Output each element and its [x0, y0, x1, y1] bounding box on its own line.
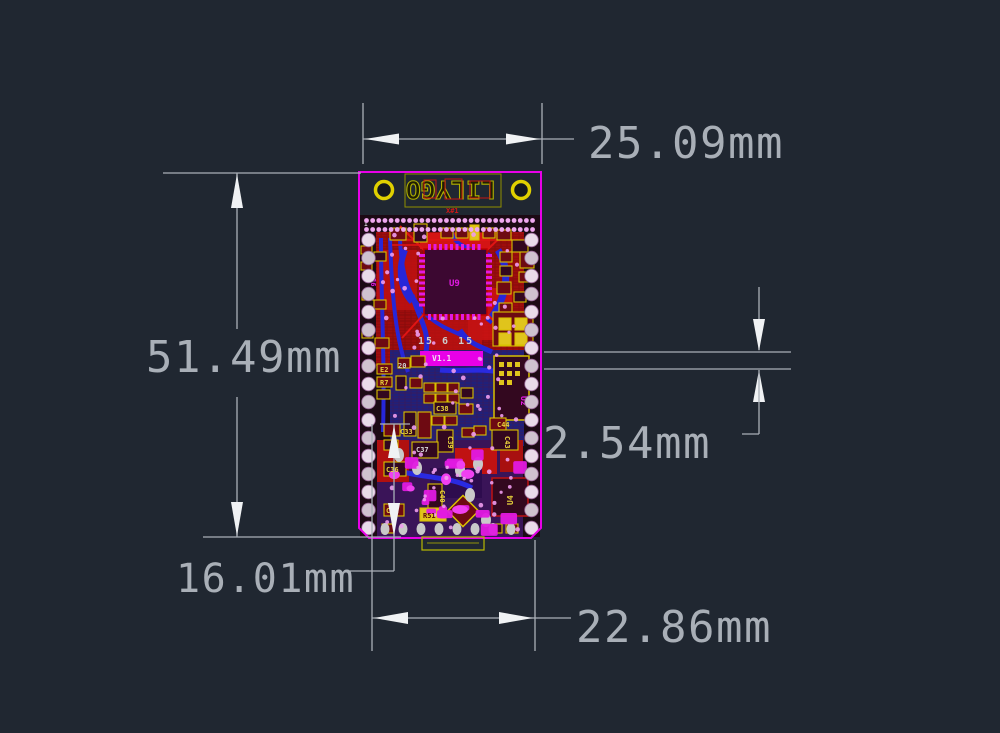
chip-pin: [467, 244, 470, 250]
header-pad: [438, 227, 443, 232]
header-pad: [389, 218, 394, 223]
edge-pad-left: [362, 287, 376, 301]
component-pad: [375, 338, 389, 348]
header-pad: [426, 218, 431, 223]
via-dot: [466, 403, 470, 407]
chip-u9: U9: [419, 244, 492, 320]
via-dot: [475, 469, 479, 473]
via-dot: [396, 278, 399, 281]
via-dot: [503, 305, 507, 309]
header-pad: [469, 227, 474, 232]
edge-pad-left: [362, 503, 376, 517]
component-pad: [500, 266, 512, 276]
via-dot: [441, 316, 445, 320]
mounting-hole-right: [513, 182, 530, 199]
component-pad: [384, 424, 400, 436]
bottom-oval-pad: [417, 523, 426, 535]
label-r51: R51: [423, 512, 436, 520]
chip-pin: [461, 314, 464, 320]
component-pad: [374, 252, 386, 261]
via-dot: [385, 270, 389, 274]
label-c20: 20: [398, 362, 406, 370]
component-pad: [418, 412, 431, 438]
header-pad: [487, 227, 492, 232]
header-pad: [530, 227, 535, 232]
component-pad: [414, 224, 427, 242]
via-dot: [486, 316, 490, 320]
via-dot: [416, 252, 420, 256]
header-pad: [456, 227, 461, 232]
via-dot: [499, 491, 502, 494]
header-pad: [469, 218, 474, 223]
arrowhead-left: [365, 134, 399, 145]
header-pad: [512, 227, 517, 232]
via-dot: [493, 301, 497, 305]
header-pad: [419, 227, 424, 232]
chip-pin: [419, 287, 425, 290]
chip-pin: [428, 244, 431, 250]
chip-pin: [445, 314, 448, 320]
header-pad: [481, 227, 486, 232]
header-pad: [364, 227, 369, 232]
header-pad: [506, 227, 511, 232]
via-dot: [432, 486, 435, 489]
header-pad: [407, 218, 412, 223]
chip-pin: [428, 314, 431, 320]
header-bar: [420, 351, 483, 366]
header-pad: [438, 218, 443, 223]
header-pad: [518, 227, 523, 232]
dimension-bottom-text: 22.86mm: [576, 602, 772, 653]
via-dot: [390, 289, 395, 294]
via-dot: [402, 286, 407, 291]
edge-pad-right: [525, 377, 539, 391]
via-dot: [393, 414, 397, 418]
edge-pad-left: [362, 413, 376, 427]
via-dot: [384, 316, 389, 321]
header-pad: [444, 227, 449, 232]
via-dot: [432, 470, 436, 474]
edge-pad-left: [362, 323, 376, 337]
chip-pin: [456, 314, 459, 320]
label-c39: C39: [446, 436, 454, 449]
component-pad: [377, 390, 390, 399]
edge-pad-left: [362, 269, 376, 283]
chip-pin: [486, 298, 492, 301]
arrowhead-down: [231, 502, 243, 536]
via-dot: [415, 279, 419, 283]
via-dot: [509, 476, 513, 480]
dimension-left-text: 51.49mm: [146, 332, 342, 383]
component-pad: [424, 394, 435, 403]
chip-pin: [467, 314, 470, 320]
via-dot: [404, 386, 407, 389]
chip-pin: [450, 314, 453, 320]
arrowhead-up: [231, 174, 243, 208]
header-pad: [524, 218, 529, 223]
chip-pin: [419, 260, 425, 263]
edge-pad-left: [362, 251, 376, 265]
chip-pin: [419, 282, 425, 285]
component-pad: [459, 404, 473, 414]
header-pad: [376, 227, 381, 232]
chip-pin: [456, 244, 459, 250]
header-pad: [506, 218, 511, 223]
header-pad: [376, 218, 381, 223]
header-pad: [493, 227, 498, 232]
via-dot: [416, 466, 419, 469]
solder-blob: [481, 524, 498, 536]
chip-pin: [486, 293, 492, 296]
via-dot: [487, 365, 491, 369]
bottom-oval-pad: [507, 523, 516, 535]
edge-pad-right: [525, 323, 539, 337]
header-pad: [499, 227, 504, 232]
header-pad: [481, 218, 486, 223]
header-pad: [530, 218, 535, 223]
via-dot: [468, 446, 471, 449]
chip-pin: [434, 314, 437, 320]
edge-pad-right: [525, 287, 539, 301]
edge-pad-left: [362, 449, 376, 463]
bottom-oval-pad: [471, 523, 480, 535]
header-pad: [426, 227, 431, 232]
solder-blob: [471, 449, 483, 460]
dimension-right-pitch: 2.54mm: [543, 287, 791, 469]
header-pad: [401, 218, 406, 223]
component-pad: [461, 388, 473, 398]
header-pad: [383, 218, 388, 223]
chip-pin: [486, 265, 492, 268]
header-pad: [383, 227, 388, 232]
via-dot: [476, 404, 480, 408]
header-pad: [395, 227, 400, 232]
via-dot: [392, 233, 397, 238]
via-dot: [486, 395, 490, 399]
label-c36: C36: [386, 466, 399, 474]
component-pad: [515, 333, 527, 345]
bottom-oval-pad: [453, 523, 462, 535]
via-dot: [451, 369, 456, 374]
header-pad: [450, 218, 455, 223]
edge-pad-left: [362, 395, 376, 409]
via-dot: [506, 458, 510, 462]
edge-pad-right: [525, 449, 539, 463]
edge-pad-left: [362, 377, 376, 391]
via-dot: [385, 520, 389, 524]
component-pad: [445, 416, 457, 425]
via-dot: [497, 407, 501, 411]
chip-pin: [419, 298, 425, 301]
arrowhead-right: [506, 134, 540, 145]
header-pad: [389, 227, 394, 232]
header-pad: [518, 218, 523, 223]
via-dot: [492, 512, 496, 516]
chip-pin: [486, 287, 492, 290]
via-dot: [487, 469, 492, 474]
via-dot: [471, 232, 476, 237]
edge-pad-left: [362, 431, 376, 445]
dimension-right-text: 2.54mm: [543, 418, 711, 469]
header-pad: [456, 218, 461, 223]
via-dot: [514, 417, 518, 421]
header-pad: [475, 218, 480, 223]
via-dot: [492, 501, 496, 505]
arrowhead-left: [374, 612, 408, 624]
edge-pad-right: [525, 305, 539, 319]
module-u2: U2: [494, 356, 529, 420]
chip-pin: [419, 265, 425, 268]
arrowhead-right: [499, 612, 533, 624]
edge-pad-left: [362, 233, 376, 247]
solder-blob: [452, 505, 468, 514]
solder-blob: [405, 457, 419, 469]
via-dot: [432, 341, 436, 345]
via-dot: [445, 466, 448, 469]
via-dot: [490, 446, 494, 450]
edge-pad-right: [525, 485, 539, 499]
edge-pad-right: [525, 467, 539, 481]
edge-pad-right: [525, 251, 539, 265]
via-dot: [381, 280, 385, 284]
via-dot: [399, 524, 403, 528]
component-pad: [499, 318, 511, 330]
arrowhead-down: [753, 319, 765, 351]
chip-pin: [472, 244, 475, 250]
edge-pad-right: [525, 413, 539, 427]
header-pad: [463, 218, 468, 223]
version-label: V1.1: [432, 354, 451, 363]
mounting-hole-left: [376, 182, 393, 199]
chip-pin: [486, 271, 492, 274]
dimension-top-text: 25.09mm: [588, 118, 784, 169]
header-pad: [512, 218, 517, 223]
chip-pin: [486, 304, 492, 307]
via-dot: [456, 474, 459, 477]
via-dot: [390, 253, 394, 257]
via-dot: [496, 377, 500, 381]
via-dot: [500, 414, 503, 417]
component-pad: [499, 333, 511, 345]
via-dot: [415, 509, 419, 513]
chip-pin: [419, 304, 425, 307]
solder-blob: [456, 460, 465, 469]
header-pad: [487, 218, 492, 223]
chip-pin: [439, 244, 442, 250]
chip-pin: [486, 254, 492, 257]
edge-pad-left: [362, 305, 376, 319]
component-pad: [424, 383, 435, 392]
component-pad: [374, 300, 386, 309]
header-pad: [395, 218, 400, 223]
chip-pin: [419, 293, 425, 296]
solder-blob: [500, 513, 517, 524]
solder-blob: [407, 485, 415, 491]
component-pad: [436, 383, 447, 392]
via-dot: [423, 494, 426, 497]
via-dot: [507, 331, 510, 334]
header-pad: [370, 227, 375, 232]
edge-pad-left: [362, 467, 376, 481]
solder-blob: [476, 510, 490, 518]
header-pad: [524, 227, 529, 232]
edge-pad-right: [525, 395, 539, 409]
via-dot: [512, 324, 516, 328]
bottom-oval-pad: [381, 523, 390, 535]
header-pad: [493, 218, 498, 223]
chip-u9-label: U9: [449, 279, 460, 289]
pcb-board: U9 15 6 15 V1.1 U2 U4: [359, 172, 541, 550]
header-pad: [419, 218, 424, 223]
via-dot: [451, 401, 454, 404]
ic-u4-label: U4: [506, 495, 515, 505]
logo-band: LILYGO X#1: [376, 174, 530, 215]
label-e2: E2: [380, 366, 388, 374]
chip-pin: [478, 244, 481, 250]
via-dot: [473, 316, 477, 320]
via-dot: [415, 330, 419, 334]
header-pad: [463, 227, 468, 232]
header-pad: [413, 227, 418, 232]
via-dot: [404, 247, 408, 251]
via-dot: [442, 425, 447, 430]
label-c33: C33: [400, 428, 413, 436]
via-dot: [444, 476, 448, 480]
header-pad: [444, 218, 449, 223]
header-pad: [450, 227, 455, 232]
chip-pin: [461, 244, 464, 250]
chip-pin: [486, 276, 492, 279]
via-dot: [479, 503, 484, 508]
edge-pad-left: [362, 341, 376, 355]
label-c44: C44: [497, 421, 510, 429]
date-code-label: 15 6 15: [418, 336, 474, 347]
via-dot: [471, 432, 476, 437]
component-pad: [500, 252, 512, 262]
bottom-oval-pad: [435, 523, 444, 535]
via-dot: [495, 353, 499, 357]
header-pad: [401, 227, 406, 232]
via-dot: [449, 526, 453, 530]
chip-pin: [419, 254, 425, 257]
component-pad: [410, 378, 422, 388]
edge-pad-right: [525, 503, 539, 517]
via-dot: [461, 376, 466, 381]
via-dot: [423, 498, 427, 502]
edge-pad-right: [525, 233, 539, 247]
via-dot: [506, 249, 509, 252]
edge-pad-right: [525, 341, 539, 355]
component-pad: [432, 416, 444, 425]
dimension-lower-left-text: 16.01mm: [176, 556, 355, 602]
ic-u4: U4: [492, 478, 528, 516]
chip-pin: [478, 314, 481, 320]
header-pad: [407, 227, 412, 232]
via-dot: [424, 362, 428, 366]
header-pad: [432, 227, 437, 232]
via-dot: [454, 389, 458, 393]
header-pad: [475, 227, 480, 232]
header-pad: [432, 218, 437, 223]
edge-pad-right: [525, 431, 539, 445]
via-dot: [478, 408, 481, 411]
via-dot: [469, 479, 473, 483]
cad-drawing-canvas: U9 15 6 15 V1.1 U2 U4: [0, 0, 1000, 733]
dimension-top-width: 25.09mm: [363, 103, 784, 169]
chip-pin: [419, 271, 425, 274]
edge-pad-right: [525, 359, 539, 373]
via-dot: [493, 326, 497, 330]
edge-pad-left: [362, 359, 376, 373]
component-pad: [497, 282, 511, 294]
label-c43: C43: [503, 436, 511, 449]
via-dot: [508, 485, 512, 489]
edge-pad-left: [362, 485, 376, 499]
via-dot: [442, 504, 446, 508]
via-dot: [490, 481, 494, 485]
component-pad: [514, 292, 526, 302]
label-r7: R7: [380, 379, 388, 387]
via-dot: [515, 527, 520, 532]
edge-pad-right: [525, 269, 539, 283]
via-dot: [418, 374, 422, 378]
header-pad: [413, 218, 418, 223]
label-c40: C40: [438, 490, 446, 503]
assembly-label: X#1: [446, 207, 459, 215]
chip-pin: [486, 260, 492, 263]
solder-blob: [437, 510, 453, 518]
via-dot: [462, 477, 466, 481]
label-c37: C37: [416, 446, 429, 454]
component-pad: [411, 356, 425, 367]
via-dot: [480, 322, 483, 325]
via-dot: [478, 357, 482, 361]
drawing-svg: U9 15 6 15 V1.1 U2 U4: [0, 0, 1000, 733]
header-pad: [499, 218, 504, 223]
via-dot: [515, 263, 519, 267]
chip-pin: [445, 244, 448, 250]
chip-pin: [450, 244, 453, 250]
chip-pin: [419, 276, 425, 279]
via-dot: [422, 235, 427, 240]
chip-pin: [434, 244, 437, 250]
label-c38: C38: [436, 405, 449, 413]
header-pad: [364, 218, 369, 223]
chip-pin: [486, 282, 492, 285]
header-pad: [370, 218, 375, 223]
via-dot: [412, 346, 416, 350]
